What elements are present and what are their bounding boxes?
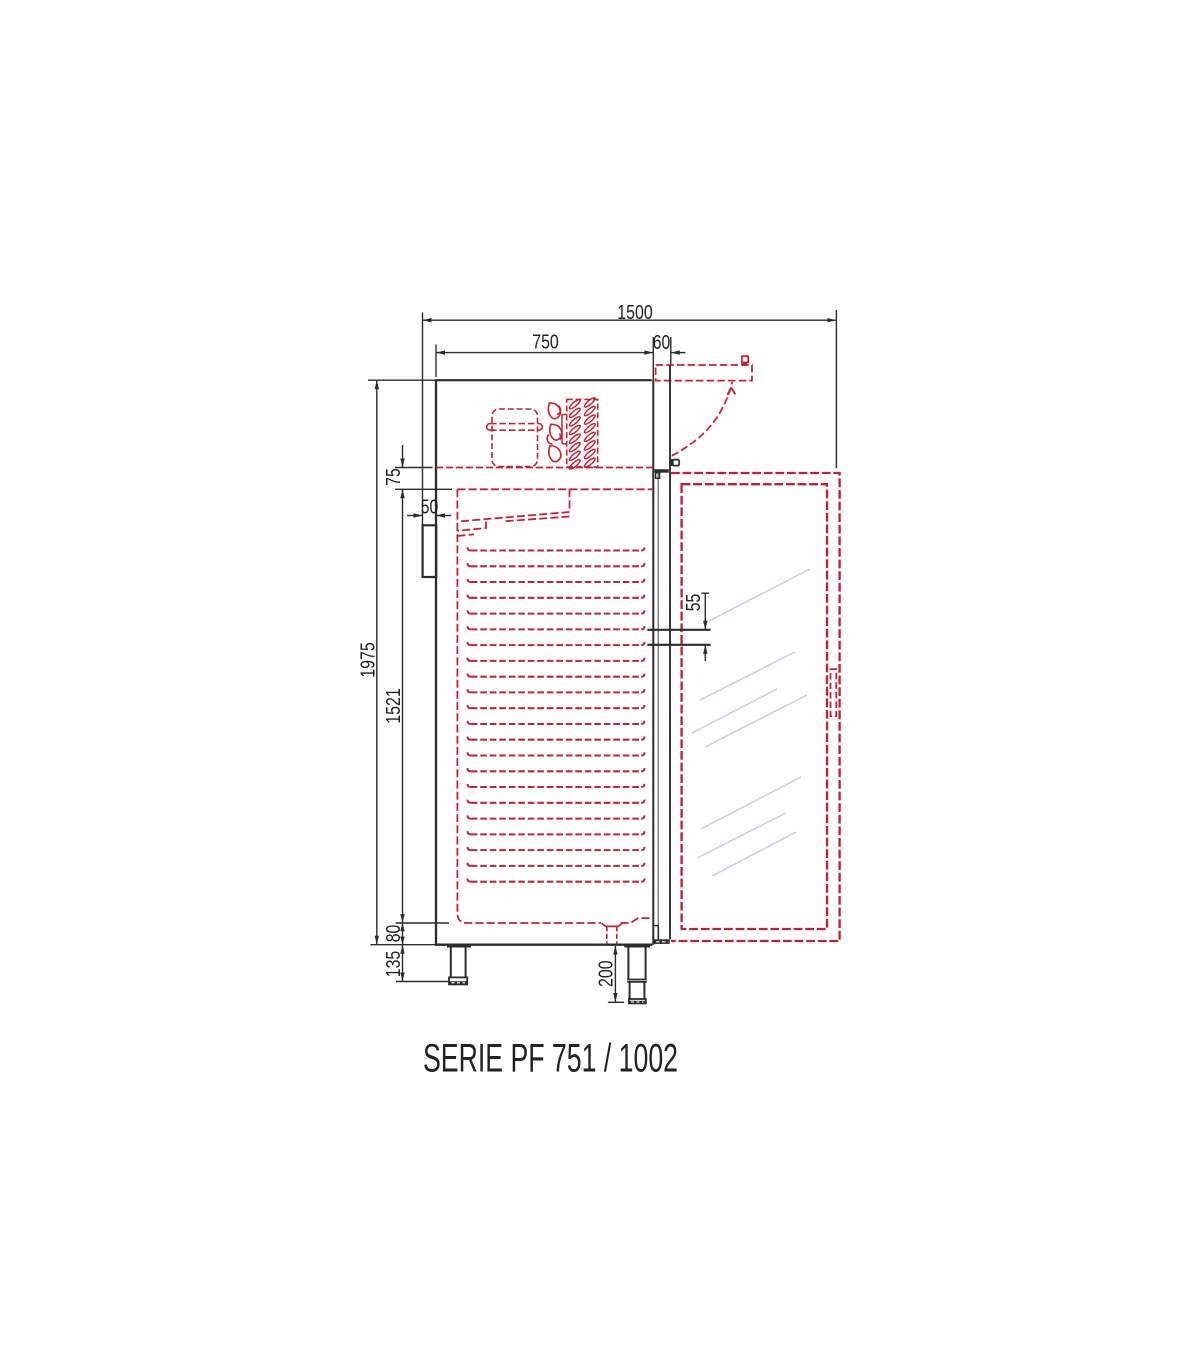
svg-text:1521: 1521 (383, 688, 405, 724)
svg-text:80: 80 (383, 925, 405, 943)
svg-text:55: 55 (683, 594, 705, 612)
svg-text:60: 60 (653, 332, 671, 354)
svg-text:50: 50 (421, 497, 439, 519)
svg-text:200: 200 (595, 960, 617, 987)
svg-text:SERIE PF 751 / 1002: SERIE PF 751 / 1002 (423, 1037, 678, 1081)
svg-text:750: 750 (532, 332, 559, 354)
svg-text:1500: 1500 (617, 302, 653, 324)
svg-text:1975: 1975 (358, 642, 380, 678)
svg-text:75: 75 (383, 468, 405, 486)
svg-text:135: 135 (383, 951, 405, 978)
